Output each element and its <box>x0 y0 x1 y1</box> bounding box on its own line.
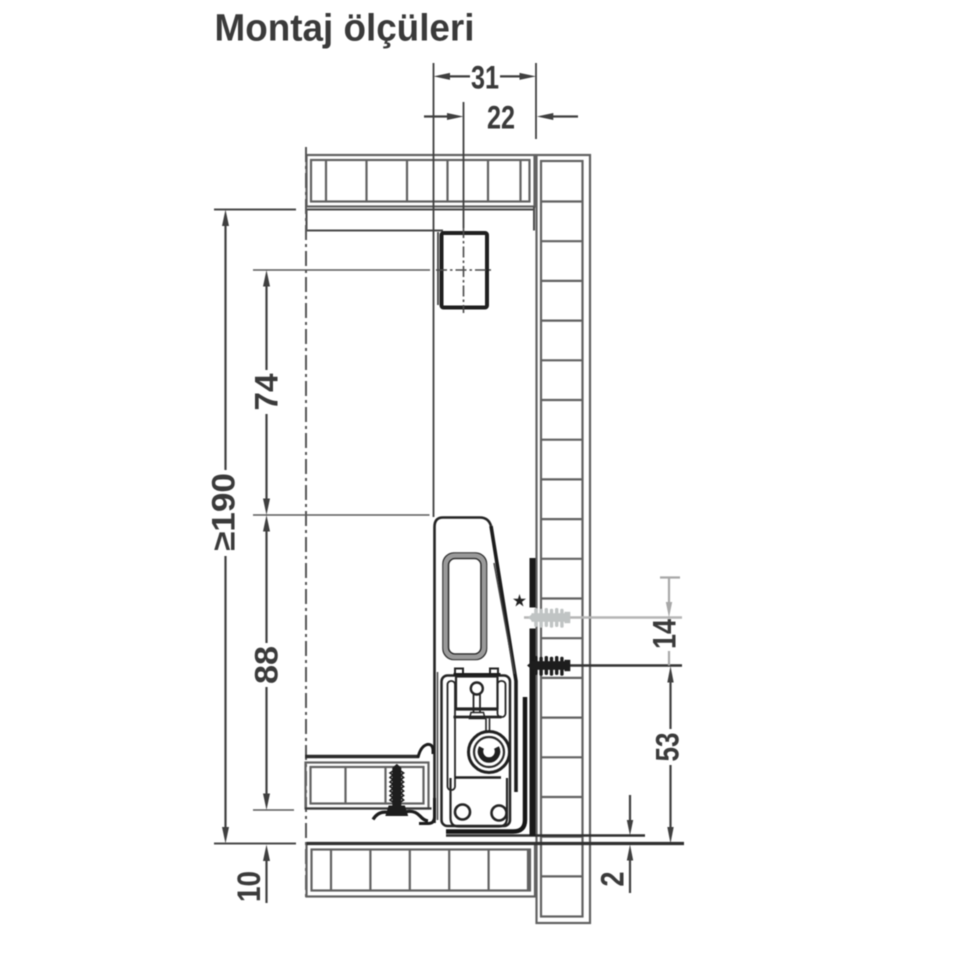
svg-text:53: 53 <box>650 733 686 762</box>
svg-text:≥190: ≥190 <box>206 473 242 551</box>
svg-text:14: 14 <box>647 619 683 649</box>
svg-text:10: 10 <box>231 871 267 902</box>
svg-text:2: 2 <box>595 872 631 887</box>
svg-text:74: 74 <box>249 373 285 410</box>
svg-text:Montaj ölçüleri: Montaj ölçüleri <box>215 8 475 50</box>
svg-text:22: 22 <box>487 100 515 136</box>
svg-text:31: 31 <box>471 60 499 96</box>
svg-text:88: 88 <box>249 646 285 684</box>
